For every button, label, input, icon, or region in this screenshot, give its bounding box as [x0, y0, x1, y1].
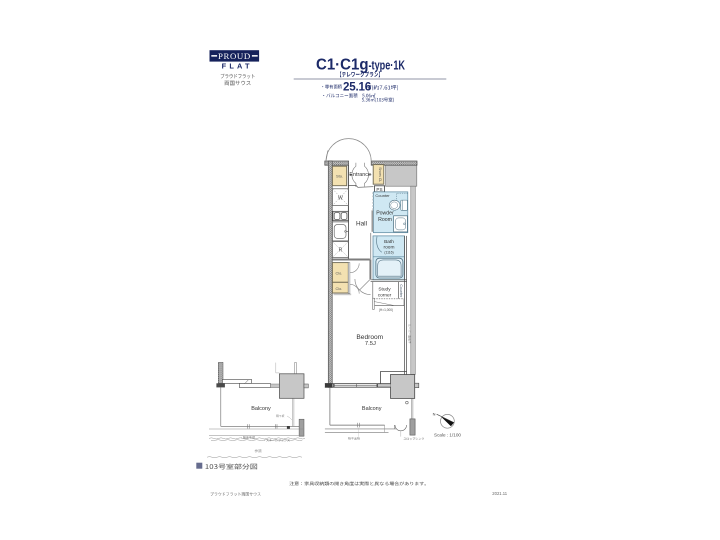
svg-text:(H=1,000): (H=1,000)	[379, 308, 393, 312]
svg-text:R: R	[339, 247, 343, 253]
svg-text:PROUD: PROUD	[218, 51, 251, 61]
svg-text:7.5J: 7.5J	[365, 341, 376, 347]
svg-text:W: W	[338, 196, 343, 202]
svg-text:PS: PS	[376, 187, 382, 192]
svg-text:Study: Study	[378, 287, 391, 293]
svg-text:Balcony: Balcony	[362, 406, 382, 412]
svg-text:Room: Room	[378, 217, 392, 223]
svg-text:Scale : 1/100: Scale : 1/100	[434, 432, 462, 437]
svg-text:-type·1K: -type·1K	[369, 57, 406, 72]
svg-text:2021.11: 2021.11	[492, 491, 507, 496]
svg-text:Powder: Powder	[376, 210, 394, 216]
svg-text:Clo.: Clo.	[336, 287, 343, 291]
svg-text:Counter: Counter	[399, 284, 403, 298]
svg-text:corner: corner	[378, 292, 392, 298]
svg-text:N: N	[433, 412, 436, 417]
svg-text:Balcony: Balcony	[251, 406, 271, 412]
svg-text:Sto.: Sto.	[336, 174, 343, 179]
svg-text:Bath: Bath	[384, 239, 394, 245]
svg-text:C1·C1g: C1·C1g	[316, 56, 369, 73]
svg-text:Counter: Counter	[375, 193, 390, 198]
svg-text:FLAT: FLAT	[222, 62, 253, 71]
svg-text:Hall: Hall	[356, 220, 367, 227]
svg-text:Clo.: Clo.	[336, 272, 343, 276]
svg-text:Entrance: Entrance	[349, 172, 371, 178]
svg-text:(1116): (1116)	[384, 250, 393, 254]
svg-text:Bedroom: Bedroom	[356, 334, 383, 341]
svg-text:Shoes CL: Shoes CL	[378, 167, 382, 182]
